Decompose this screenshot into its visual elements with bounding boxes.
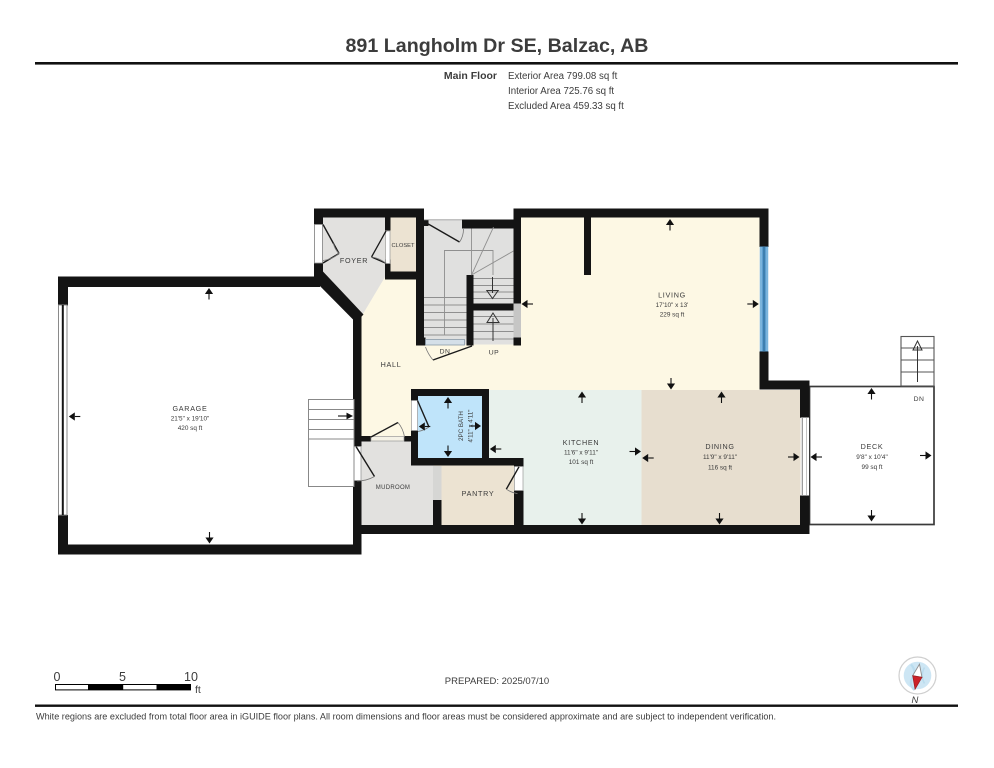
svg-text:LIVING: LIVING [658, 291, 686, 300]
svg-text:FOYER: FOYER [340, 256, 368, 265]
svg-text:HALL: HALL [381, 360, 402, 369]
svg-text:DN: DN [914, 396, 925, 403]
svg-text:PREPARED: 2025/07/10: PREPARED: 2025/07/10 [445, 676, 549, 687]
svg-text:ft: ft [195, 684, 201, 696]
svg-text:N: N [912, 695, 919, 706]
svg-text:DECK: DECK [861, 442, 884, 451]
svg-text:PANTRY: PANTRY [462, 489, 495, 498]
svg-text:GARAGE: GARAGE [173, 404, 208, 413]
svg-text:229 sq ft: 229 sq ft [660, 312, 685, 319]
svg-text:99 sq ft: 99 sq ft [862, 464, 883, 471]
svg-text:5: 5 [119, 670, 126, 684]
svg-text:10: 10 [184, 670, 198, 684]
svg-text:CLOSET: CLOSET [392, 243, 416, 249]
svg-text:Excluded Area 459.33 sq ft: Excluded Area 459.33 sq ft [508, 101, 624, 112]
svg-text:0: 0 [54, 670, 61, 684]
svg-text:UP: UP [489, 350, 499, 357]
svg-text:420 sq ft: 420 sq ft [178, 425, 203, 432]
svg-text:White regions are excluded fro: White regions are excluded from total fl… [36, 712, 776, 722]
svg-text:101 sq ft: 101 sq ft [569, 459, 594, 466]
svg-text:DN: DN [440, 349, 451, 356]
svg-text:11'6" x 9'11": 11'6" x 9'11" [564, 450, 598, 457]
svg-text:Exterior Area 799.08 sq ft: Exterior Area 799.08 sq ft [508, 71, 618, 82]
svg-text:2PC BATH: 2PC BATH [458, 411, 465, 441]
svg-text:21'5" x 19'10": 21'5" x 19'10" [171, 416, 210, 423]
svg-text:DINING: DINING [705, 442, 734, 451]
svg-text:891 Langholm Dr SE, Balzac, AB: 891 Langholm Dr SE, Balzac, AB [346, 36, 649, 57]
svg-text:4'11" x 4'11": 4'11" x 4'11" [468, 409, 475, 442]
svg-text:KITCHEN: KITCHEN [563, 438, 599, 447]
svg-text:Main Floor: Main Floor [444, 70, 497, 82]
svg-text:17'10" x 13': 17'10" x 13' [656, 302, 689, 309]
svg-text:9'8" x 10'4": 9'8" x 10'4" [856, 454, 888, 461]
svg-text:116 sq ft: 116 sq ft [708, 465, 732, 472]
svg-text:MUDROOM: MUDROOM [376, 485, 410, 491]
svg-text:Interior Area 725.76 sq ft: Interior Area 725.76 sq ft [508, 86, 614, 97]
svg-text:11'9" x 9'11": 11'9" x 9'11" [703, 454, 737, 461]
